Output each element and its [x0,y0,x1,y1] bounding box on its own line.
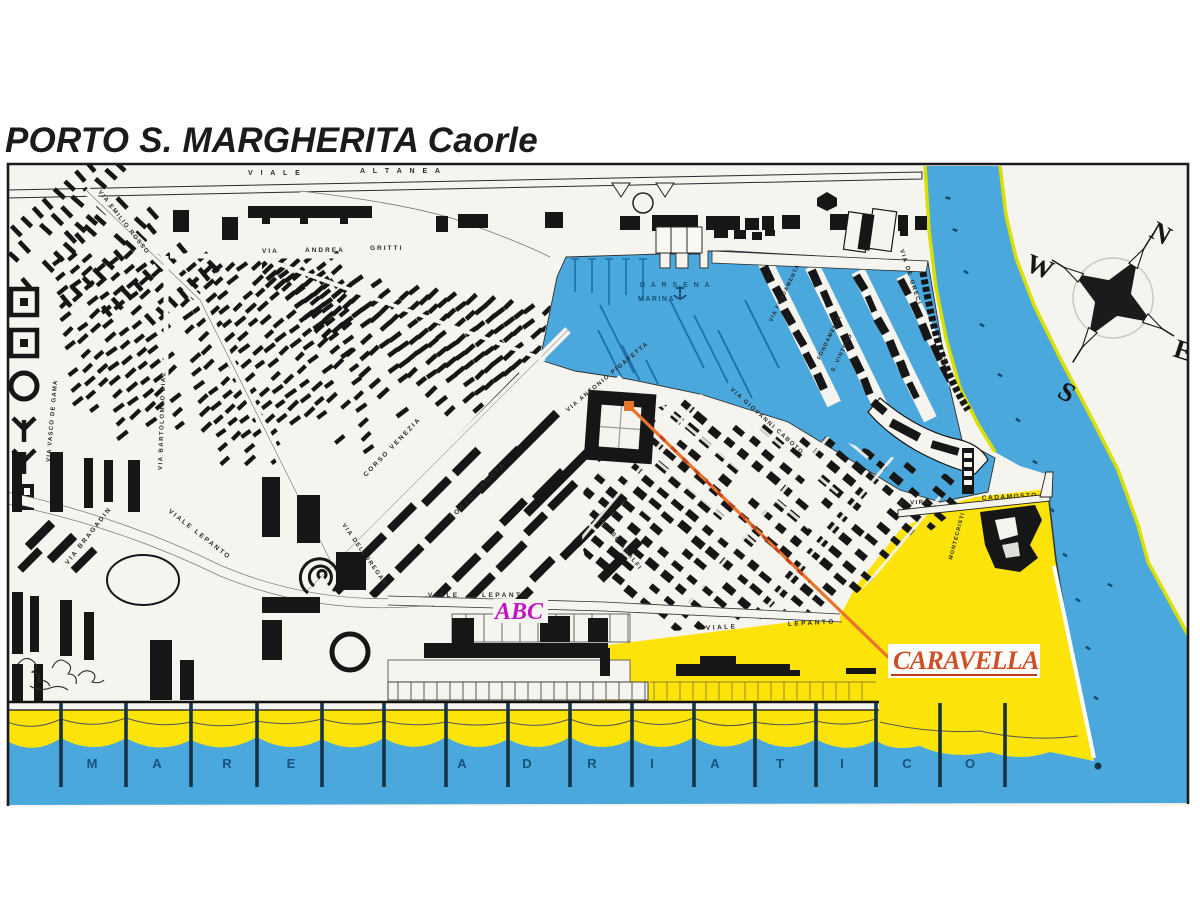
svg-text:MARINA: MARINA [638,296,675,303]
svg-text:A: A [152,756,162,771]
svg-text:A: A [457,756,467,771]
svg-text:GRITTI: GRITTI [370,245,403,252]
svg-text:D: D [522,756,531,771]
svg-text:D A R S E N A: D A R S E N A [640,282,712,289]
svg-text:M: M [87,756,98,771]
svg-text:ANDREA: ANDREA [305,247,345,254]
svg-text:CARAVELLA: CARAVELLA [893,646,1039,675]
svg-text:VIALE: VIALE [428,592,460,599]
svg-text:E: E [287,756,296,771]
svg-text:LEPANTO: LEPANTO [482,592,530,599]
svg-text:A L T A N E A: A L T A N E A [360,168,443,175]
svg-text:V I A L E: V I A L E [248,170,303,177]
svg-text:ABC: ABC [493,599,544,625]
svg-text:A: A [710,756,720,771]
svg-text:I: I [650,756,654,771]
svg-text:R: R [222,756,232,771]
svg-text:I: I [840,756,844,771]
svg-text:R: R [587,756,597,771]
svg-text:T: T [776,756,784,771]
svg-text:O: O [965,756,975,771]
svg-text:C: C [902,756,912,771]
svg-text:PORTO S. MARGHERITA Caorle: PORTO S. MARGHERITA Caorle [5,121,538,160]
svg-text:VIA: VIA [262,248,279,255]
